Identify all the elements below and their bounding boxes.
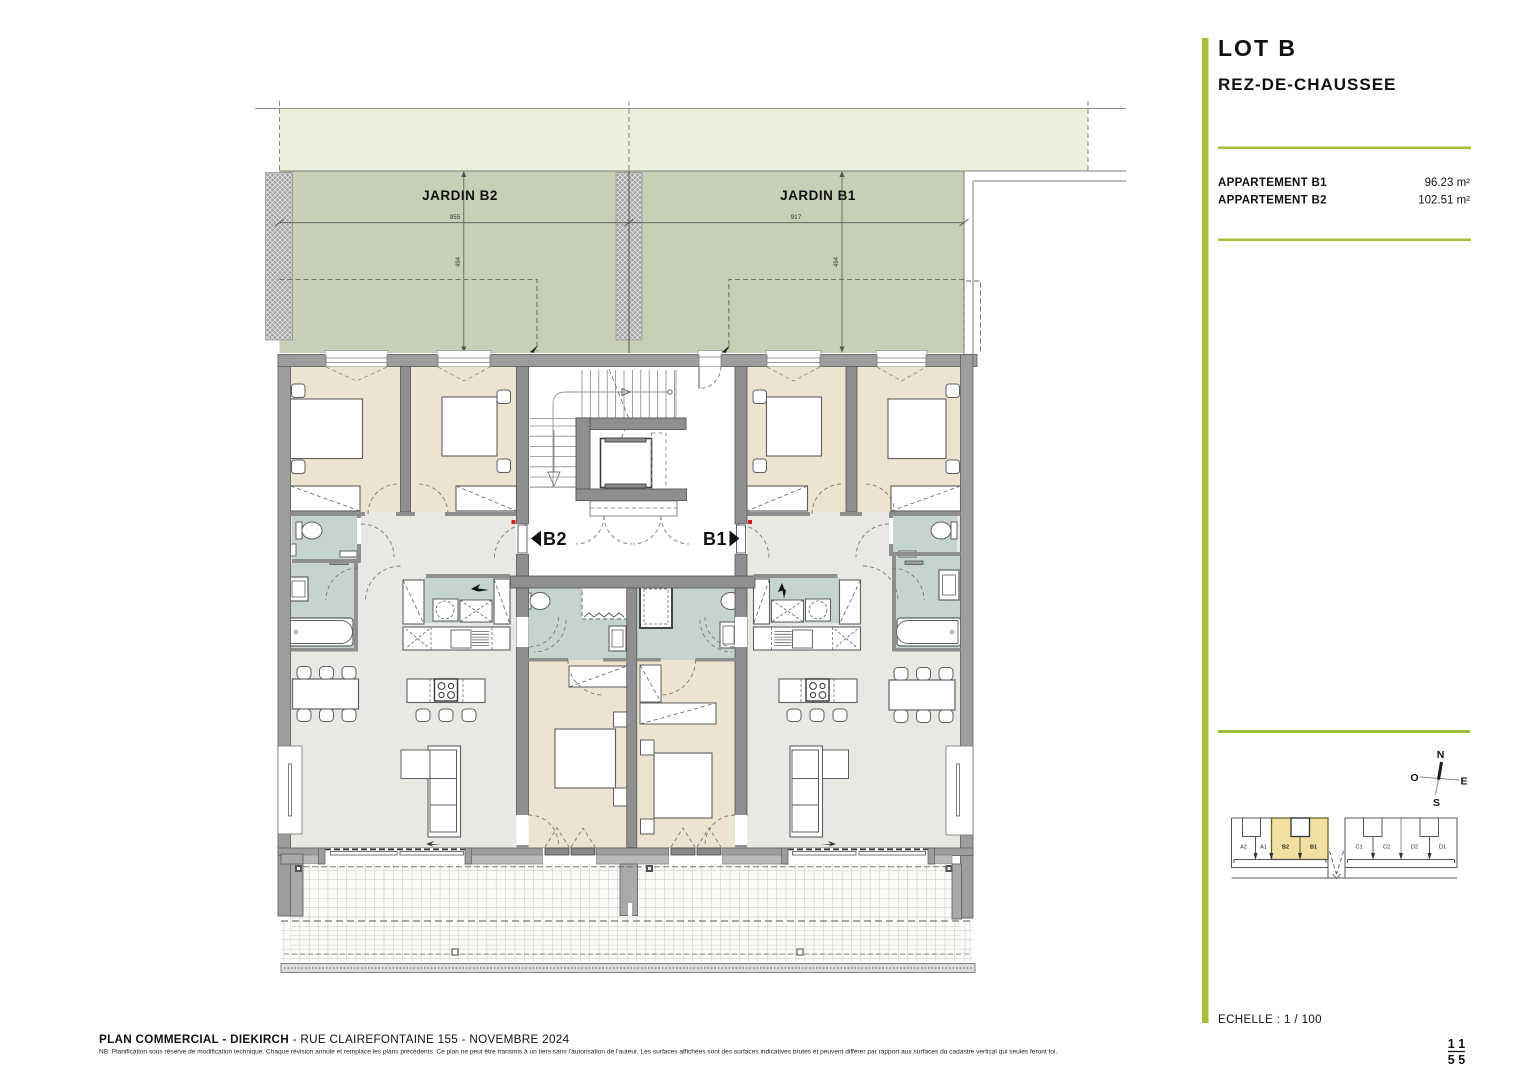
svg-text:5 5: 5 5 bbox=[1448, 1053, 1465, 1067]
svg-text:B2: B2 bbox=[1282, 845, 1289, 851]
svg-text:JARDIN B1: JARDIN B1 bbox=[780, 188, 856, 203]
svg-text:ECHELLE : 1 / 100: ECHELLE : 1 / 100 bbox=[1218, 1014, 1322, 1026]
svg-text:LOT B: LOT B bbox=[1218, 35, 1297, 61]
svg-text:JARDIN B2: JARDIN B2 bbox=[422, 188, 498, 203]
svg-text:96.23 m²: 96.23 m² bbox=[1425, 177, 1471, 189]
svg-text:APPARTEMENT B2: APPARTEMENT B2 bbox=[1218, 195, 1327, 207]
svg-text:D2: D2 bbox=[1411, 845, 1418, 851]
svg-text:102.51 m²: 102.51 m² bbox=[1418, 195, 1470, 207]
svg-text:B2: B2 bbox=[543, 529, 567, 549]
svg-text:B1: B1 bbox=[1310, 845, 1317, 851]
svg-text:NB: Planification sous réserve: NB: Planification sous réserve de modifi… bbox=[99, 1049, 1057, 1056]
svg-text:1 1: 1 1 bbox=[1448, 1037, 1465, 1051]
svg-text:917: 917 bbox=[791, 214, 802, 221]
svg-text:C1: C1 bbox=[1355, 845, 1362, 851]
svg-text:494: 494 bbox=[456, 256, 462, 267]
svg-text:494: 494 bbox=[834, 256, 840, 267]
svg-text:N: N bbox=[1437, 749, 1445, 761]
svg-text:REZ-DE-CHAUSSEE: REZ-DE-CHAUSSEE bbox=[1218, 75, 1396, 94]
svg-text:D1: D1 bbox=[1439, 845, 1446, 851]
svg-text:O: O bbox=[1410, 772, 1418, 784]
svg-text:S: S bbox=[1433, 797, 1440, 809]
svg-text:955: 955 bbox=[450, 214, 461, 221]
svg-text:C2: C2 bbox=[1383, 845, 1390, 851]
svg-text:A2: A2 bbox=[1240, 845, 1247, 851]
svg-text:APPARTEMENT B1: APPARTEMENT B1 bbox=[1218, 177, 1327, 189]
svg-text:E: E bbox=[1460, 776, 1467, 788]
svg-text:A1: A1 bbox=[1260, 845, 1267, 851]
svg-text:B1: B1 bbox=[703, 529, 727, 549]
svg-text:PLAN COMMERCIAL - DIEKIRCH - R: PLAN COMMERCIAL - DIEKIRCH - RUE CLAIREF… bbox=[99, 1033, 570, 1046]
